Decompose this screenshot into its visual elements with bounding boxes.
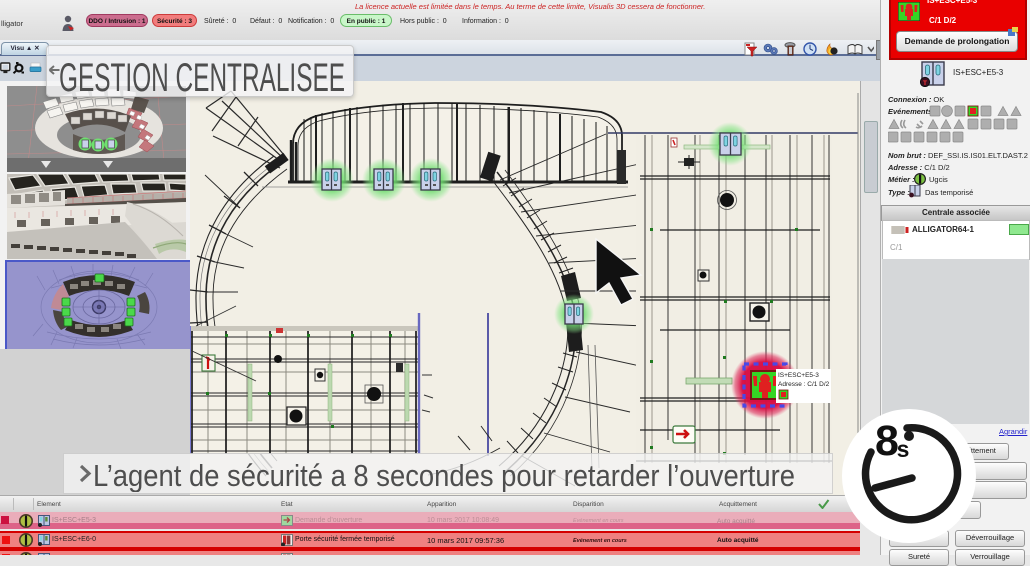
svg-text:GESTION CENTRALISEE: GESTION CENTRALISEE xyxy=(59,56,345,95)
svg-text:IS+ESC+E5-3: IS+ESC+E5-3 xyxy=(778,372,819,379)
svg-text:8: 8 xyxy=(875,417,899,465)
svg-text:L’agent de sécurité a 8 second: L’agent de sécurité a 8 secondes pour re… xyxy=(93,458,795,492)
svg-text:Adresse : C/1 D/2: Adresse : C/1 D/2 xyxy=(778,381,830,388)
svg-text:s: s xyxy=(897,436,910,462)
svg-text:T: T xyxy=(923,80,927,87)
